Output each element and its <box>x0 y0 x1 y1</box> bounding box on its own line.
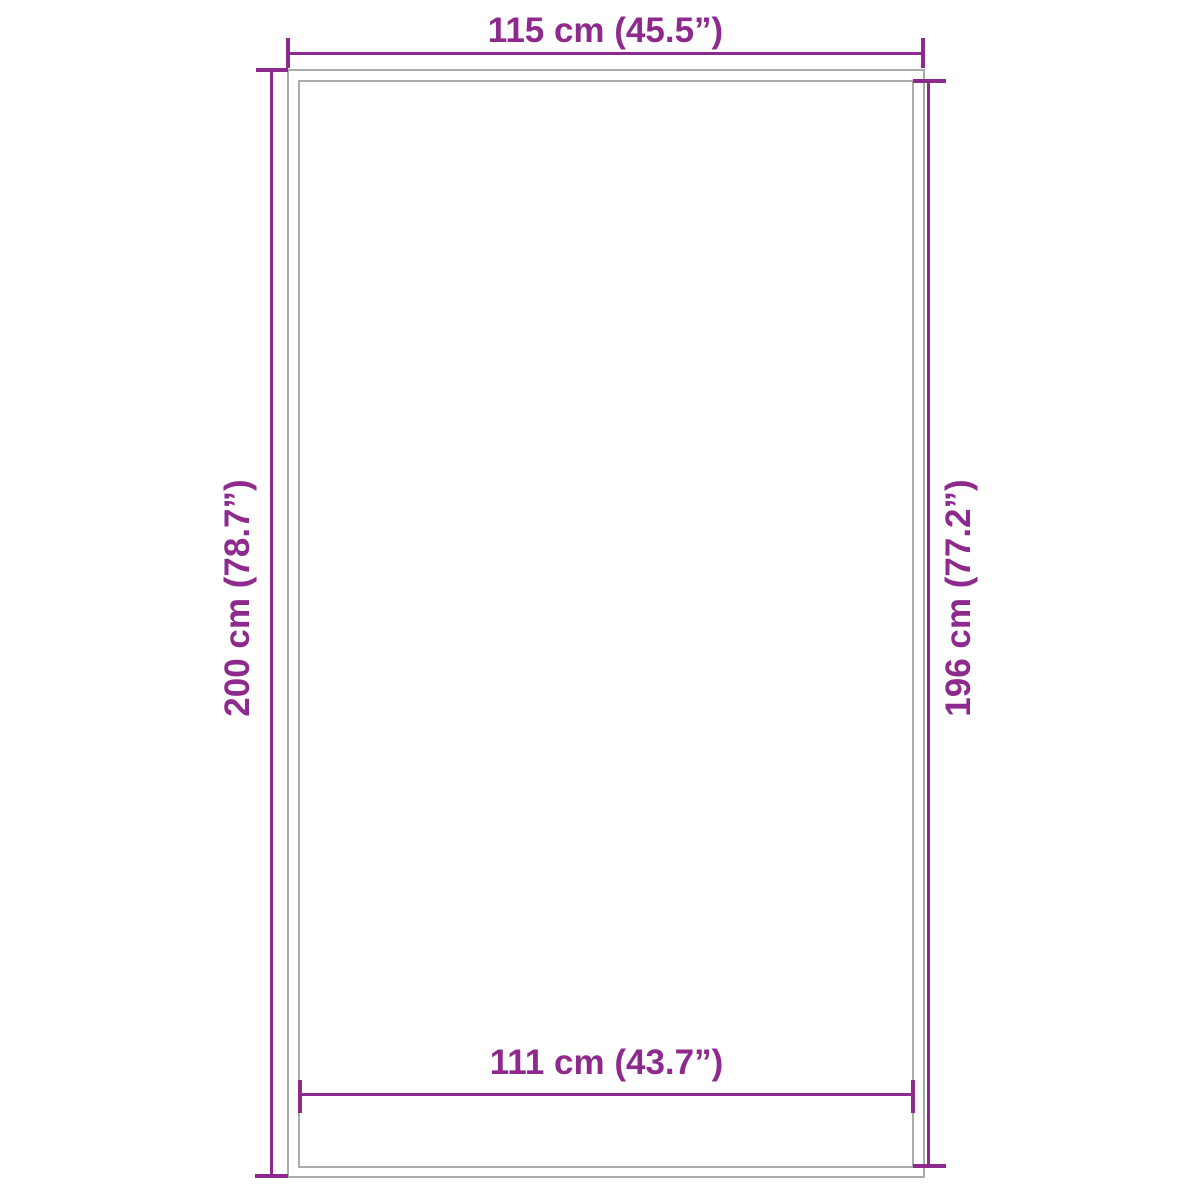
product-inner-outline <box>298 80 914 1168</box>
dimension-label-top: 115 cm (45.5”) <box>288 10 923 52</box>
dimension-label-left: 200 cm (78.7”) <box>217 479 259 716</box>
dimension-tick-left-bottom <box>255 1174 288 1178</box>
dimension-tick-top-right <box>921 38 925 68</box>
dimension-tick-top-left <box>286 38 290 68</box>
dimension-line-bottom <box>300 1093 913 1096</box>
dimension-tick-left-top <box>256 68 288 72</box>
dimension-tick-bottom-right <box>911 1080 915 1113</box>
dimension-line-top <box>288 52 923 55</box>
dimension-line-right <box>927 81 930 1167</box>
dimension-tick-bottom-left <box>298 1080 302 1113</box>
dimension-label-right: 196 cm (77.2”) <box>938 479 980 716</box>
dimension-tick-right-bottom <box>913 1164 946 1168</box>
dimension-label-bottom: 111 cm (43.7”) <box>300 1042 913 1084</box>
dimension-line-left <box>270 70 273 1177</box>
dimension-tick-right-top <box>913 79 946 83</box>
dimension-diagram: 115 cm (45.5”) 200 cm (78.7”) 196 cm (77… <box>0 0 1200 1200</box>
